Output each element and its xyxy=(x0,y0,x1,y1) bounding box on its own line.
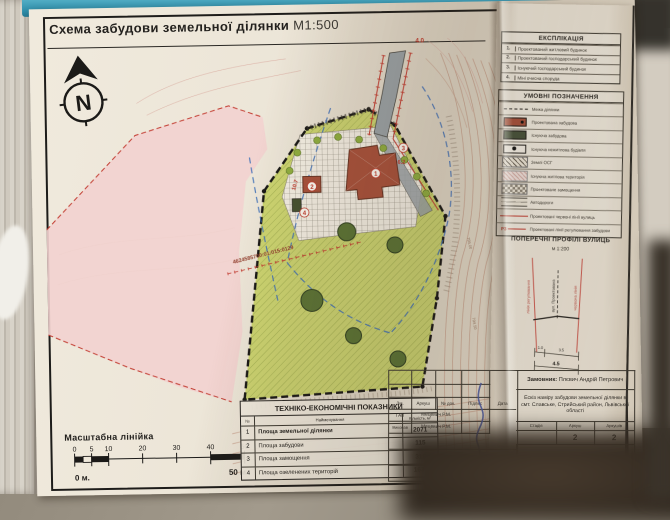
regulation-lines-symbol xyxy=(508,229,526,230)
contour-lines-red xyxy=(135,37,482,117)
svg-text:5: 5 xyxy=(89,446,93,453)
svg-text:795.00: 795.00 xyxy=(466,237,474,251)
existing-residential-zone xyxy=(45,105,272,405)
profile-dim-total: 4.5 xyxy=(552,361,559,367)
svg-text:794.50: 794.50 xyxy=(471,317,478,331)
profile-dim-right: 3.5 xyxy=(559,348,564,352)
existing-building-symbol xyxy=(503,131,526,140)
osg-lands-symbol xyxy=(501,157,527,168)
svg-text:30: 30 xyxy=(173,445,181,452)
profile-left-label: лінія регулювання xyxy=(525,280,531,314)
existing-building xyxy=(292,199,301,212)
site-plan-sheet: Схема забудови земельної ділянки М1:500 … xyxy=(29,0,643,496)
street-profile-diagram: лінія регулювання вул. Проектована черво… xyxy=(514,256,600,377)
paving-symbol xyxy=(501,183,527,194)
scale-start-label: 0 м. xyxy=(75,473,90,482)
svg-text:40: 40 xyxy=(207,444,215,451)
nonresidential-building-symbol xyxy=(503,144,526,153)
red-lines-symbol xyxy=(500,215,528,216)
svg-text:6.2: 6.2 xyxy=(397,160,405,166)
legend-table: УМОВНІ ПОЗНАЧЕННЯ Межа ділянки Проектова… xyxy=(496,89,625,238)
table-row: 4. Міні очисна споруда xyxy=(501,72,619,84)
svg-text:4.0: 4.0 xyxy=(415,37,424,44)
plot-boundary-symbol xyxy=(503,108,527,109)
proposed-building-symbol xyxy=(504,117,527,126)
svg-text:10: 10 xyxy=(105,446,113,453)
roads-symbol xyxy=(501,198,527,207)
table-shadow-bottom-right xyxy=(400,430,670,520)
photo-of-site-plan: { "sheet": { "title": "Схема забудови зе… xyxy=(0,0,670,494)
table-shadow-right xyxy=(648,240,670,500)
client-name: Плєвич Андрій Петрович xyxy=(559,377,624,383)
client-row: Замовник: Плєвич Андрій Петрович xyxy=(516,371,634,390)
profile-dim-left: 1.0 xyxy=(538,346,543,350)
explication-table: ЕКСПЛІКАЦІЯ 1. Проектований житловий буд… xyxy=(500,31,621,84)
profile-center-label: вул. Проектована xyxy=(550,279,556,312)
profile-right-label: червона лінія xyxy=(572,286,577,311)
profiles-scale: м 1:200 xyxy=(492,245,628,253)
elevation-labels: 795.00 794.50 xyxy=(466,237,478,331)
project-name: Ескіз наміру забудови земельної ділянки … xyxy=(516,389,634,422)
svg-text:0: 0 xyxy=(72,447,76,454)
svg-text:20: 20 xyxy=(139,445,147,452)
profiles-title: ПОПЕРЕЧНІ ПРОФІЛІ ВУЛИЦЬ xyxy=(493,235,629,244)
residential-territory-symbol xyxy=(501,170,527,181)
